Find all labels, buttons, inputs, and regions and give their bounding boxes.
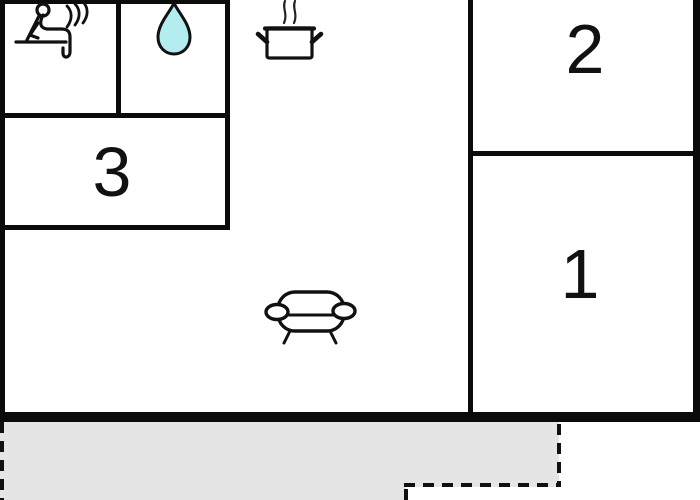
wall-bottom-exterior bbox=[0, 412, 700, 422]
terrace-dash-left bbox=[0, 422, 4, 500]
sauna-person bbox=[16, 4, 70, 57]
room-label-1: 1 bbox=[538, 238, 622, 310]
terrace-dash-step bbox=[404, 483, 561, 487]
sauna-icon bbox=[8, 2, 108, 72]
water-drop-icon bbox=[152, 2, 196, 58]
pot-steam-waves bbox=[284, 1, 295, 23]
sauna-steam-waves bbox=[67, 2, 87, 27]
sofa-body bbox=[266, 292, 355, 343]
wall-boxes-bottom bbox=[0, 113, 230, 118]
room-label-2: 2 bbox=[543, 13, 627, 85]
sofa-icon bbox=[260, 288, 360, 346]
terrace-dash-step-down bbox=[404, 489, 408, 500]
wall-sauna-divider bbox=[116, 0, 121, 117]
wall-rooms-1-2-divider bbox=[468, 151, 700, 156]
terrace-dash-right bbox=[557, 424, 561, 487]
terrace-lower bbox=[0, 487, 406, 500]
water-drop-shape bbox=[158, 3, 190, 54]
room-label-3: 3 bbox=[70, 136, 154, 208]
cooking-pot-icon bbox=[250, 0, 328, 62]
wall-room3-bottom bbox=[0, 225, 230, 230]
wall-center-vertical bbox=[468, 0, 473, 412]
terrace-upper bbox=[0, 422, 559, 487]
wall-right bbox=[693, 0, 700, 412]
wall-left bbox=[0, 0, 5, 412]
floor-plan: 2 1 3 bbox=[0, 0, 700, 500]
pot-body bbox=[258, 28, 321, 58]
